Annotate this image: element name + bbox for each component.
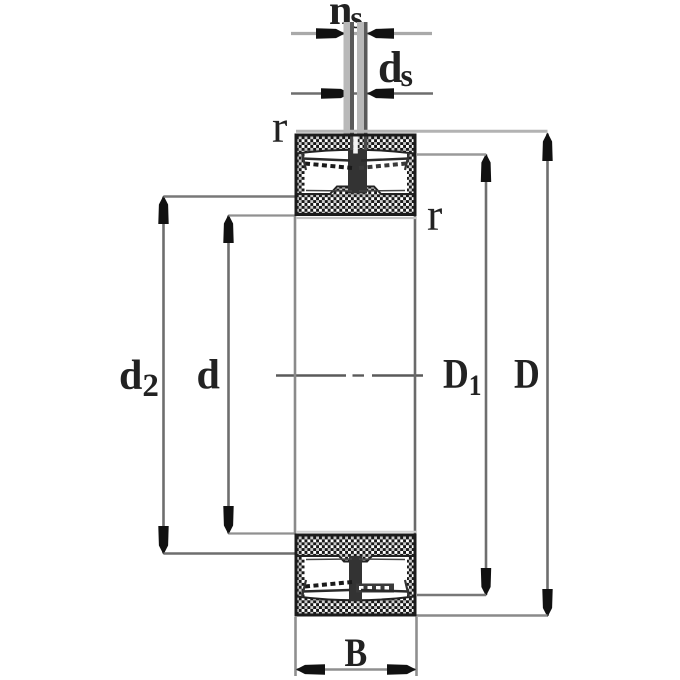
svg-text:B: B <box>345 632 368 676</box>
svg-text:d: d <box>197 353 220 399</box>
svg-text:D: D <box>514 351 540 397</box>
svg-text:r: r <box>272 101 287 152</box>
svg-text:r: r <box>427 189 442 240</box>
